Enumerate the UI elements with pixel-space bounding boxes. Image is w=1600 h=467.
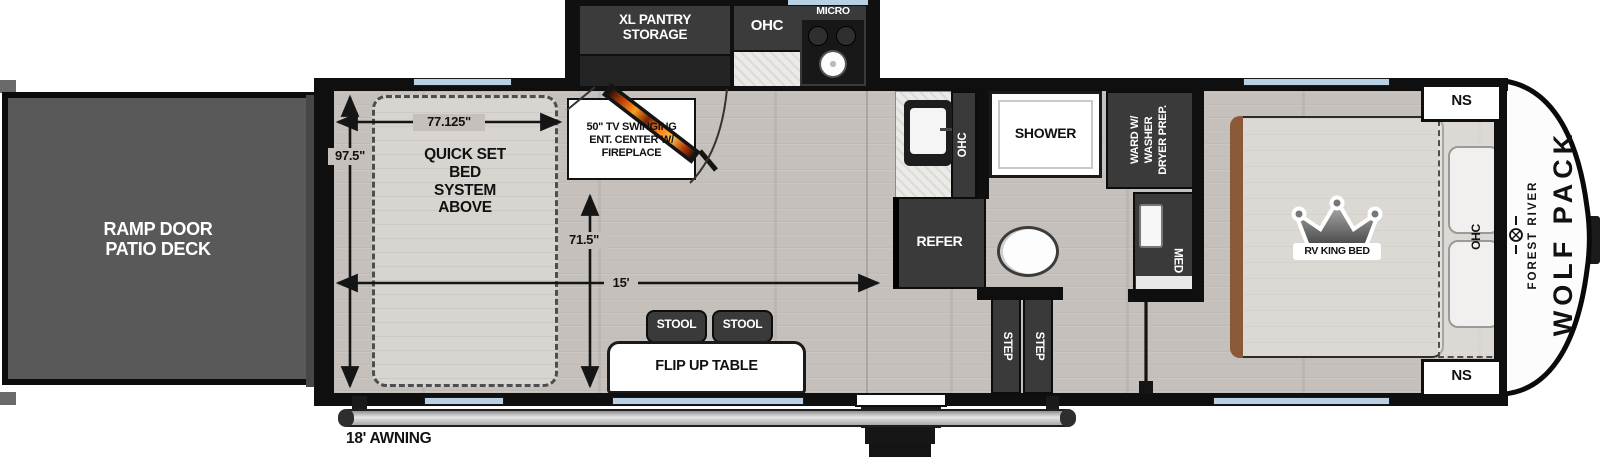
ward-label: WARD W/ WASHER DRYER PREP. [1129, 90, 1171, 190]
dim-label-97: 97.5" [328, 148, 372, 165]
step-label-1: STEP [999, 316, 1013, 376]
pantry-label-line1: XL PANTRY [580, 12, 730, 27]
rv-king-bed-label: RV KING BED [1293, 246, 1381, 258]
ramp-deck-label: RAMP DOOR PATIO DECK [30, 219, 286, 259]
bed-label-line1: QUICK SET [375, 146, 555, 164]
ohc-counter-label: OHC [957, 122, 971, 168]
dim-label-71: 71.5" [560, 232, 608, 249]
awning-label: 18' AWNING [346, 430, 456, 447]
flip-up-table-label: FLIP UP TABLE [607, 358, 806, 374]
ward-label-line1: WARD W/ [1129, 90, 1143, 190]
stool-label-1: STOOL [646, 318, 707, 331]
refer-label: REFER [893, 234, 986, 250]
ramp-label-line2: PATIO DECK [30, 239, 286, 259]
tv-label-line3: FIREPLACE [567, 147, 696, 160]
ohc-slideout-label: OHC [734, 18, 800, 35]
bed-label-line4: ABOVE [375, 199, 555, 217]
shower-label: SHOWER [989, 126, 1102, 142]
ramp-label-line1: RAMP DOOR [30, 219, 286, 239]
micro-label: MICRO [800, 6, 866, 18]
dim-label-77: 77.125" [413, 114, 485, 131]
bedroom-ohc-label: OHC [1470, 215, 1484, 259]
xl-pantry-label: XL PANTRY STORAGE [580, 12, 730, 42]
step-label-2: STEP [1031, 316, 1045, 376]
quick-set-bed-label: QUICK SET BED SYSTEM ABOVE [375, 146, 555, 217]
nightstand-bottom-label: NS [1421, 368, 1502, 385]
bedroom-door-hinge [1139, 381, 1153, 394]
stool-label-2: STOOL [712, 318, 773, 331]
slide-corner-line [567, 87, 595, 110]
bed-label-line3: SYSTEM [375, 182, 555, 200]
ward-label-line2: WASHER [1143, 90, 1157, 190]
pantry-label-line2: STORAGE [580, 27, 730, 42]
brand-wolf-pack: WOLF PACK [1548, 103, 1576, 363]
tv-label-line2: ENT. CENTER W/ [567, 134, 696, 147]
med-label: MED [1171, 238, 1184, 284]
dim-label-15: 15' [604, 275, 638, 292]
bed-label-line2: BED [375, 164, 555, 182]
brand-forest-river: FOREST RIVER [1527, 155, 1541, 315]
tv-ent-center-label: 50" TV SWINGING ENT. CENTER W/ FIREPLACE [567, 121, 696, 161]
nightstand-top-label: NS [1421, 93, 1502, 110]
ward-label-line3: DRYER PREP. [1157, 90, 1171, 190]
rv-floorplan: RAMP DOOR PATIO DECK QUICK SET BED SYSTE… [0, 0, 1600, 467]
tv-label-line1: 50" TV SWINGING [567, 121, 696, 134]
